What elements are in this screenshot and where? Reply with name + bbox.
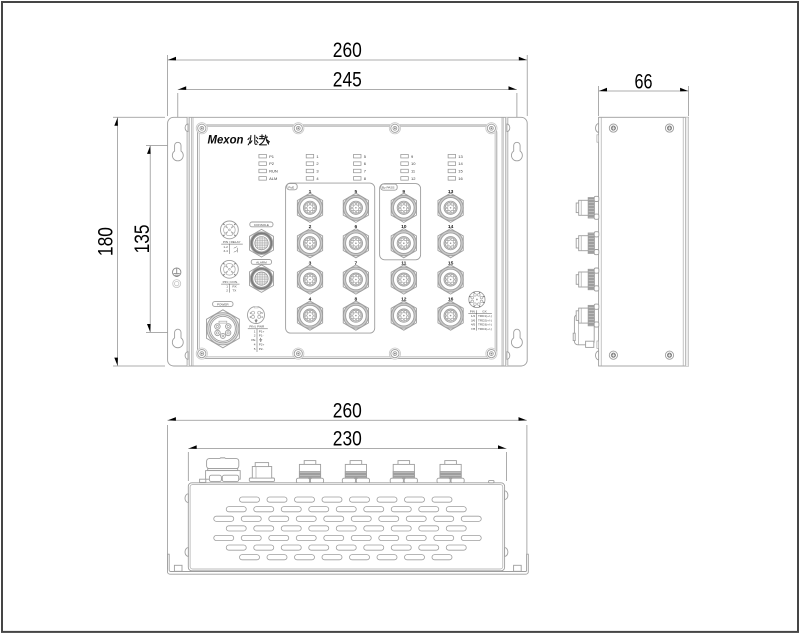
svg-text:By PASS: By PASS	[382, 185, 395, 189]
svg-text:RUN: RUN	[269, 169, 278, 174]
svg-text:TRD4(+/-): TRD4(+/-)	[478, 327, 492, 331]
svg-text:ALM: ALM	[269, 176, 277, 181]
svg-text:12: 12	[411, 176, 416, 181]
svg-text:3-4: 3-4	[223, 249, 228, 253]
svg-text:ALARM: ALARM	[256, 260, 267, 264]
svg-text:14: 14	[458, 161, 463, 166]
svg-text:P2-: P2-	[259, 347, 264, 351]
svg-text:P1: P1	[269, 154, 275, 159]
svg-text:CONSOLE: CONSOLE	[254, 223, 269, 227]
svg-text:TX: TX	[232, 289, 236, 293]
svg-text:POWER: POWER	[217, 302, 229, 306]
svg-text:260: 260	[333, 39, 362, 62]
svg-text:66: 66	[635, 71, 653, 94]
svg-text:2: 2	[254, 334, 256, 338]
svg-text:13: 13	[458, 154, 463, 159]
svg-text:PIN | PWR: PIN | PWR	[249, 325, 265, 329]
svg-text:245: 245	[333, 69, 362, 92]
svg-text:PoE: PoE	[288, 186, 294, 190]
svg-text:15: 15	[458, 169, 463, 174]
svg-text:GX: GX	[482, 310, 486, 314]
svg-text:PIN | RELAY: PIN | RELAY	[223, 240, 241, 244]
svg-text:PIN | CON.: PIN | CON.	[223, 280, 239, 284]
svg-text:260: 260	[333, 400, 362, 423]
svg-text:230: 230	[333, 428, 362, 451]
svg-text:7/8: 7/8	[471, 327, 476, 331]
svg-text:PE: PE	[251, 338, 255, 342]
svg-text:P1-: P1-	[259, 334, 264, 338]
svg-text:Mexon: Mexon	[208, 133, 244, 146]
svg-text:5: 5	[254, 347, 256, 351]
svg-text:10: 10	[411, 161, 416, 166]
svg-text:16: 16	[458, 176, 463, 181]
svg-text:180: 180	[95, 227, 118, 256]
svg-text:PIN: PIN	[470, 310, 475, 314]
svg-text:2: 2	[226, 289, 228, 293]
svg-text:P2: P2	[269, 161, 275, 166]
svg-text:135: 135	[131, 224, 154, 253]
